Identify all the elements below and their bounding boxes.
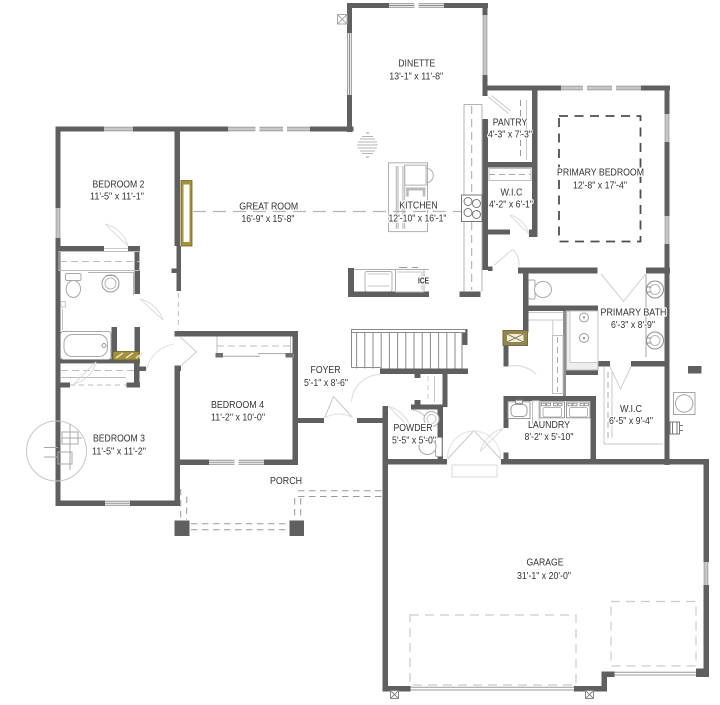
svg-text:PRIMARY BATH: PRIMARY BATH — [601, 307, 667, 319]
svg-text:BEDROOM 4: BEDROOM 4 — [211, 399, 264, 411]
svg-text:6'-5" x 9'-4": 6'-5" x 9'-4" — [609, 415, 653, 427]
svg-text:PANTRY: PANTRY — [493, 117, 528, 129]
svg-text:W.I.C: W.I.C — [501, 187, 523, 199]
svg-text:12'-8" x 17'-4": 12'-8" x 17'-4" — [573, 180, 627, 192]
svg-text:PORCH: PORCH — [270, 475, 302, 487]
svg-text:8'-2" x 5'-10": 8'-2" x 5'-10" — [525, 431, 574, 443]
svg-text:4'-3" x 7'-3": 4'-3" x 7'-3" — [488, 129, 532, 141]
svg-text:GARAGE: GARAGE — [527, 556, 564, 568]
svg-text:POWDER: POWDER — [394, 422, 433, 434]
svg-text:11'-2" x 10'-0": 11'-2" x 10'-0" — [211, 412, 265, 424]
svg-text:12'-10" x 16'-1": 12'-10" x 16'-1" — [389, 213, 447, 225]
svg-text:LAUNDRY: LAUNDRY — [528, 419, 570, 431]
svg-text:31'-1" x 20'-0": 31'-1" x 20'-0" — [517, 570, 571, 582]
svg-text:13'-1" x 11'-8": 13'-1" x 11'-8" — [389, 71, 443, 83]
svg-text:BEDROOM 3: BEDROOM 3 — [93, 433, 145, 445]
svg-text:11'-5" x 11'-1": 11'-5" x 11'-1" — [90, 191, 144, 203]
svg-text:4'-2" x 6'-1": 4'-2" x 6'-1" — [489, 199, 533, 211]
svg-text:5'-1" x 8'-6": 5'-1" x 8'-6" — [304, 377, 348, 389]
svg-text:KITCHEN: KITCHEN — [399, 200, 438, 212]
svg-text:DINETTE: DINETTE — [398, 57, 435, 69]
svg-text:6'-3" x 8'-9": 6'-3" x 8'-9" — [611, 319, 655, 331]
svg-text:PRIMARY BEDROOM: PRIMARY BEDROOM — [557, 167, 644, 179]
svg-text:5'-5" x 5'-0": 5'-5" x 5'-0" — [392, 434, 436, 446]
svg-text:W.I.C: W.I.C — [620, 403, 642, 415]
svg-text:11'-5" x 11'-2": 11'-5" x 11'-2" — [92, 446, 146, 458]
svg-text:FOYER: FOYER — [311, 364, 341, 376]
svg-text:BEDROOM 2: BEDROOM 2 — [93, 178, 145, 190]
svg-text:16'-9" x 15'-8": 16'-9" x 15'-8" — [242, 213, 295, 225]
svg-text:ICE: ICE — [418, 277, 430, 286]
svg-text:GREAT ROOM: GREAT ROOM — [239, 200, 298, 212]
